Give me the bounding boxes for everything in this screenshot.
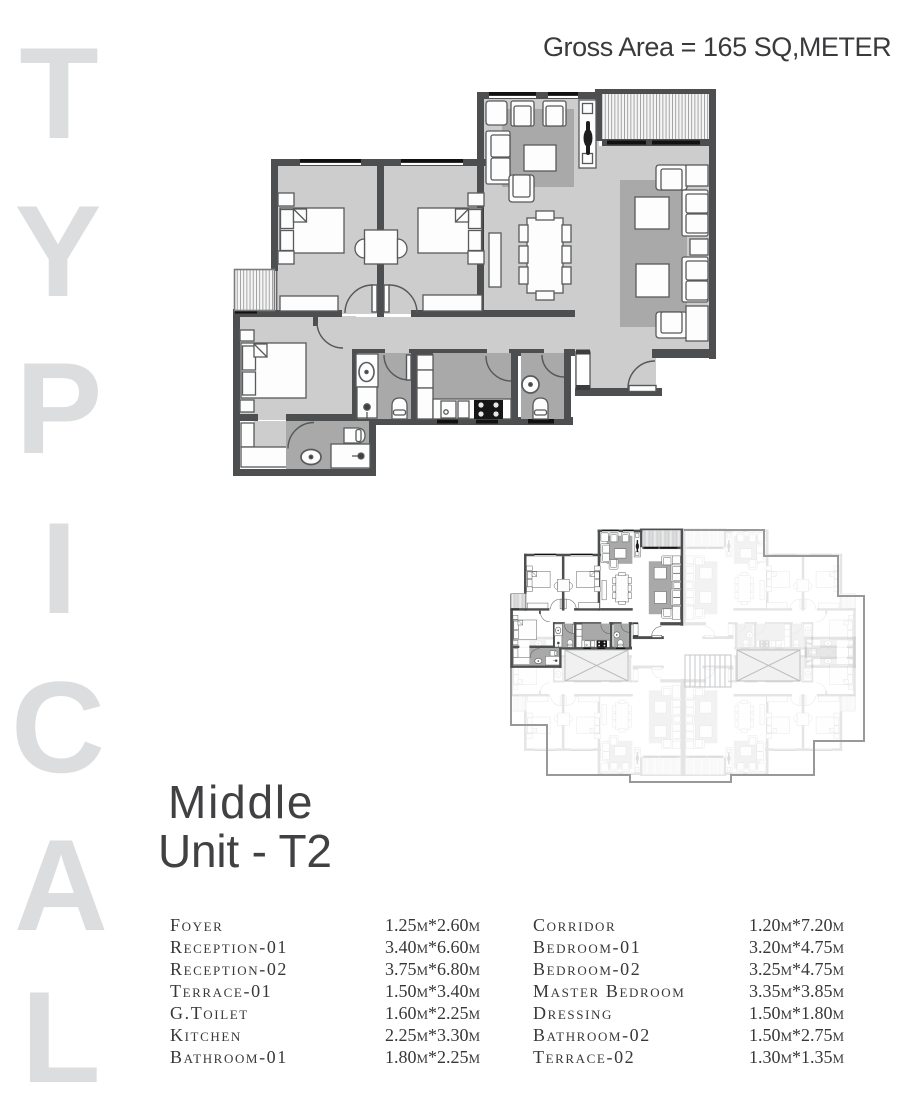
svg-text:1.80m*2.25m: 1.80m*2.25m (385, 1047, 481, 1067)
svg-text:1.25m*2.60m: 1.25m*2.60m (385, 915, 481, 935)
svg-text:Kitchen: Kitchen (170, 1025, 242, 1045)
svg-text:Y: Y (15, 178, 102, 324)
svg-text:A: A (14, 812, 108, 958)
svg-text:I: I (41, 495, 77, 641)
svg-text:Terrace-02: Terrace-02 (533, 1047, 635, 1067)
svg-text:Gross Area = 165 SQ,METER: Gross Area = 165 SQ,METER (543, 32, 891, 62)
svg-text:Middle: Middle (168, 776, 314, 828)
svg-text:1.20m*7.20m: 1.20m*7.20m (749, 915, 845, 935)
svg-text:Terrace-01: Terrace-01 (170, 981, 272, 1001)
svg-text:3.25m*4.75m: 3.25m*4.75m (749, 959, 845, 979)
svg-text:Reception-02: Reception-02 (170, 959, 288, 979)
svg-text:L: L (21, 964, 100, 1110)
svg-text:Bathroom-01: Bathroom-01 (170, 1047, 288, 1067)
svg-text:Bedroom-01: Bedroom-01 (533, 937, 641, 957)
svg-text:P: P (16, 335, 103, 481)
svg-text:Dressing: Dressing (533, 1003, 613, 1023)
svg-text:Bedroom-02: Bedroom-02 (533, 959, 641, 979)
svg-text:1.50m*2.75m: 1.50m*2.75m (749, 1025, 845, 1045)
svg-text:3.75m*6.80m: 3.75m*6.80m (385, 959, 481, 979)
svg-text:Master Bedroom: Master Bedroom (533, 981, 685, 1001)
svg-text:2.25m*3.30m: 2.25m*3.30m (385, 1025, 481, 1045)
svg-text:1.50m*3.40m: 1.50m*3.40m (385, 981, 481, 1001)
svg-text:Bathroom-02: Bathroom-02 (533, 1025, 651, 1045)
svg-text:C: C (11, 654, 105, 800)
svg-text:Corridor: Corridor (533, 915, 616, 935)
svg-text:1.50m*1.80m: 1.50m*1.80m (749, 1003, 845, 1023)
svg-text:1.60m*2.25m: 1.60m*2.25m (385, 1003, 481, 1023)
svg-text:3.40m*6.60m: 3.40m*6.60m (385, 937, 481, 957)
svg-text:3.20m*4.75m: 3.20m*4.75m (749, 937, 845, 957)
svg-text:Foyer: Foyer (170, 915, 223, 935)
svg-text:1.30m*1.35m: 1.30m*1.35m (749, 1047, 845, 1067)
svg-text:Reception-01: Reception-01 (170, 937, 288, 957)
svg-text:T: T (19, 20, 98, 166)
svg-text:G.Toilet: G.Toilet (170, 1003, 249, 1023)
svg-text:3.35m*3.85m: 3.35m*3.85m (749, 981, 845, 1001)
svg-text:Unit - T2: Unit - T2 (158, 825, 332, 877)
